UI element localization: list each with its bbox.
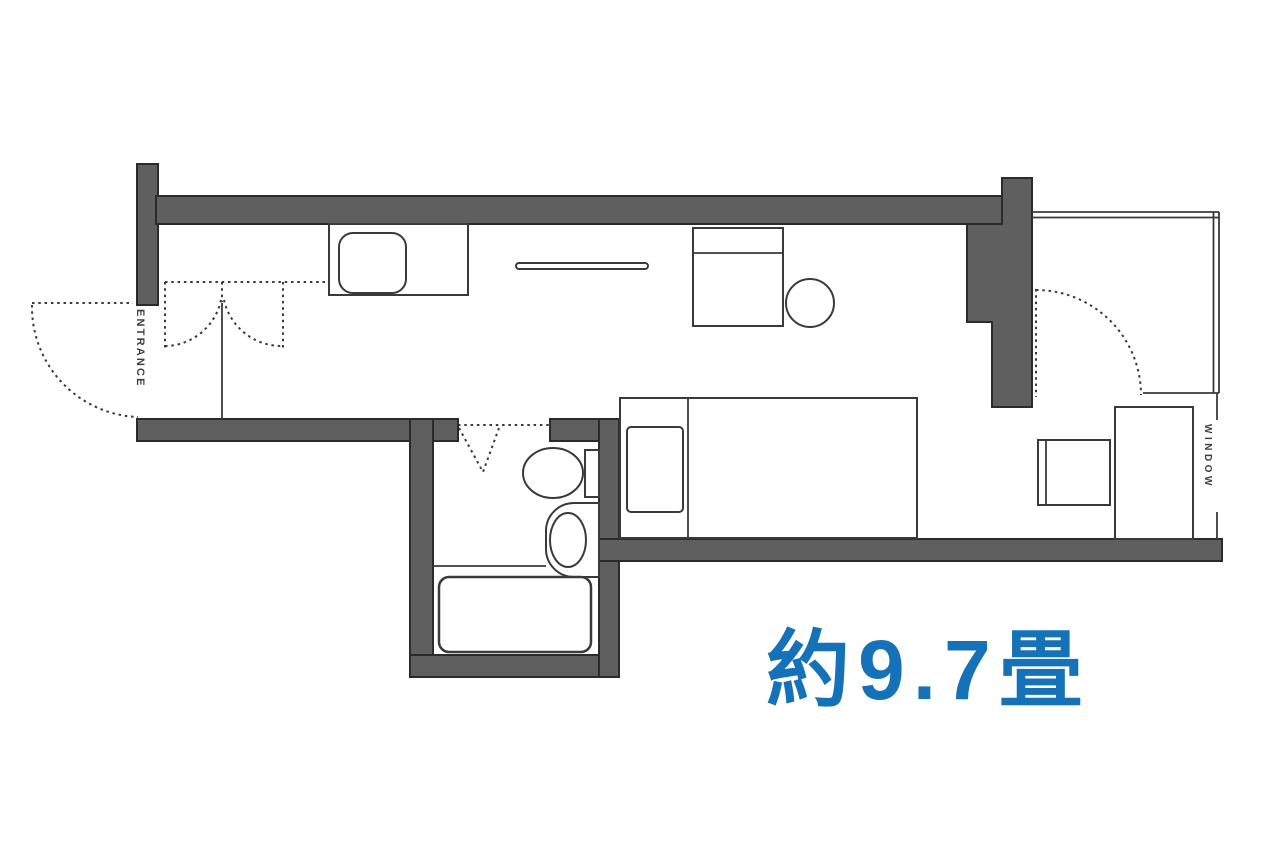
wall-bathroom-bottom	[410, 655, 619, 677]
pillow	[627, 427, 683, 512]
area-size-label: 約9.7畳	[766, 622, 1091, 719]
bathtub	[439, 577, 591, 652]
hanger-rod	[516, 263, 648, 269]
desk	[693, 228, 783, 326]
balcony-door-arc	[1036, 290, 1141, 395]
desk-chair	[786, 279, 834, 327]
wall-bathroom-left	[410, 419, 433, 677]
window-bay-right	[1214, 212, 1220, 393]
window-label: WINDOW	[1202, 424, 1213, 516]
washbasin-bowl	[550, 513, 586, 567]
floor-plan-drawing	[0, 0, 1280, 853]
toilet-tank	[585, 450, 599, 497]
window-chair	[1038, 440, 1110, 505]
wall-top	[156, 196, 1002, 224]
closet-left-door-arc	[166, 300, 221, 346]
entrance-label: ENTRANCE	[134, 309, 146, 419]
bathroom-folding-door	[459, 428, 499, 472]
entrance-door-arc	[32, 305, 138, 417]
wall-main-bottom	[599, 539, 1222, 561]
wall-left-upper	[137, 164, 158, 305]
floor-plan-page: ENTRANCE WINDOW 約9.7畳	[0, 0, 1280, 853]
window-bay-top	[1032, 212, 1219, 218]
closet-right-door-arc	[224, 300, 282, 346]
toilet-bowl	[523, 448, 583, 498]
kitchen-sink	[339, 233, 406, 293]
window-desk	[1115, 407, 1193, 539]
